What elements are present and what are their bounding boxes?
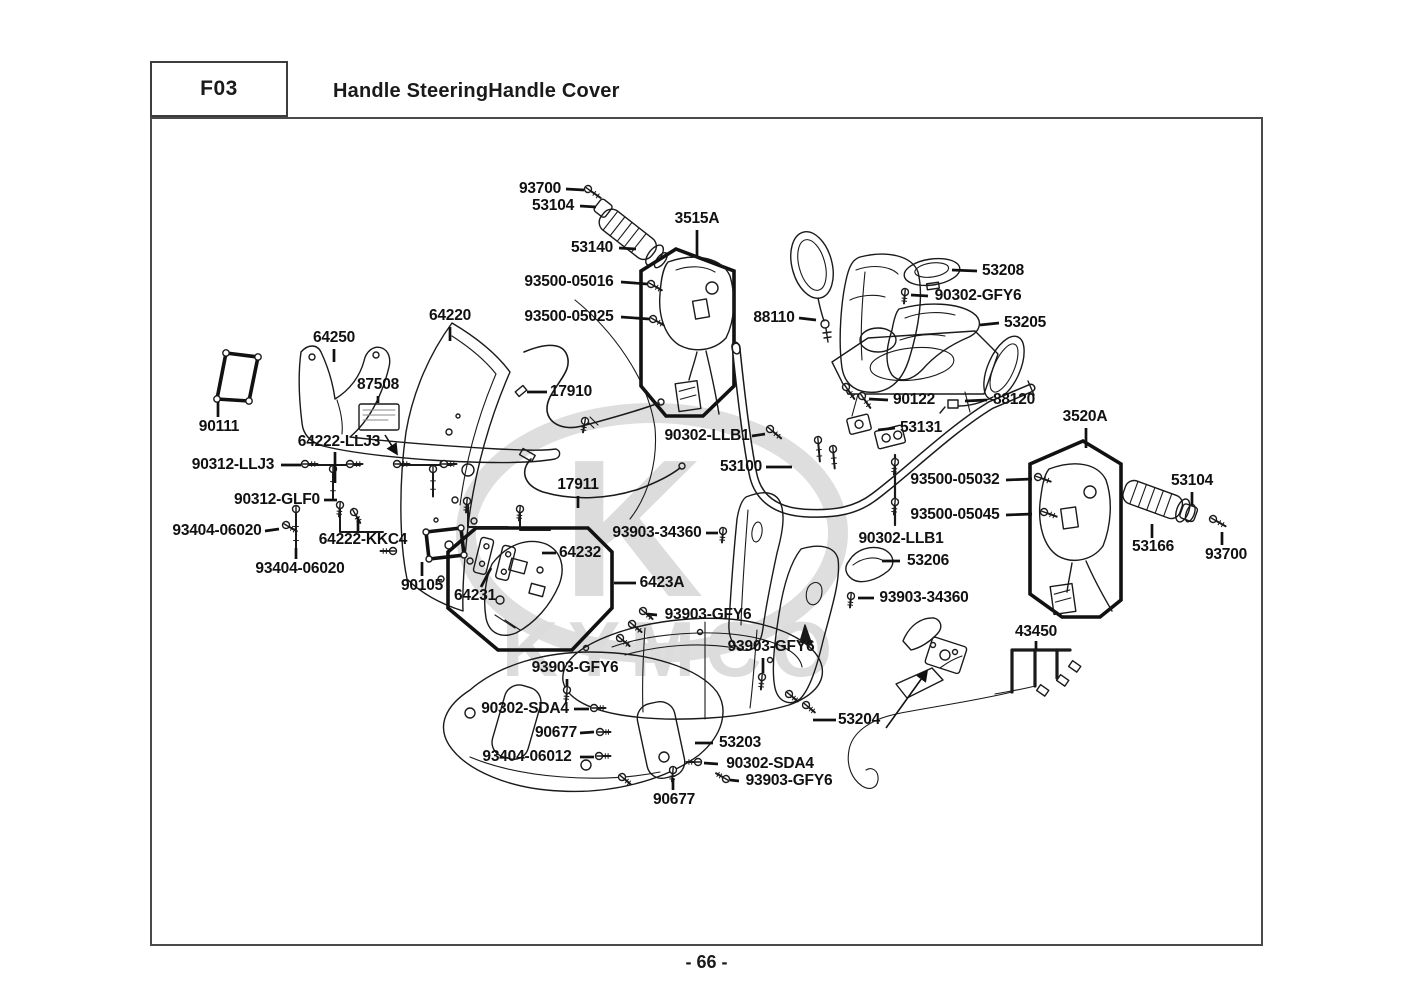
left-switch-drawing (660, 257, 734, 414)
screw-icon (583, 184, 603, 201)
screw-icon (336, 501, 344, 517)
parts-catalog-page: F03 Handle SteeringHandle Cover K KYMCO (0, 0, 1415, 1000)
page-title: Handle SteeringHandle Cover (333, 80, 620, 103)
group-box-3520A (1030, 441, 1121, 617)
screw-icon (714, 770, 730, 784)
screw-icon (847, 592, 855, 608)
screw-icon (591, 705, 606, 712)
screw-icon (890, 498, 898, 515)
gauge-cluster-drawing (832, 331, 998, 416)
screw-icon (381, 548, 397, 555)
right-grip-drawing (1120, 478, 1198, 526)
screw-icon (1208, 514, 1227, 529)
screw-icon (829, 445, 838, 469)
bracket-90111-drawing (214, 350, 261, 404)
right-switch-drawing (1040, 464, 1112, 615)
screw-icon (597, 729, 611, 736)
screw-icon (302, 461, 318, 468)
screw-icon (719, 527, 727, 543)
left-mirror-drawing (784, 227, 840, 342)
caution-label-drawing (359, 404, 399, 430)
rear-cover-drawing (840, 254, 920, 392)
screw-icon (617, 772, 633, 787)
screw-icon (687, 759, 702, 766)
screw-icon (596, 753, 611, 760)
screw-icon (901, 288, 909, 304)
group-box-3515A (641, 249, 734, 416)
screw-icon (394, 461, 410, 468)
screw-icon (347, 461, 363, 468)
screw-icon (1040, 508, 1058, 520)
cover-53205-drawing (887, 304, 979, 380)
screw-icon (801, 700, 817, 715)
section-code: F03 (200, 77, 238, 101)
speedo-cable-drawing (848, 650, 1081, 788)
screw-icon (841, 382, 857, 401)
exploded-diagram: K KYMCO (0, 0, 1415, 1000)
cover-53206-drawing (846, 548, 893, 582)
handlebar-drawing (731, 341, 1034, 513)
screw-icon (890, 458, 898, 475)
section-code-box: F03 (150, 61, 288, 117)
cap-53208-drawing (902, 255, 962, 293)
page-number: - 66 - (150, 952, 1263, 973)
screw-icon (349, 507, 363, 524)
clamp-drawing (846, 414, 905, 449)
screw-icon (430, 466, 437, 497)
screw-icon (814, 436, 823, 462)
brake-lever-drawing (896, 618, 967, 698)
leader-lines (218, 189, 1222, 790)
screw-icon (516, 505, 524, 521)
